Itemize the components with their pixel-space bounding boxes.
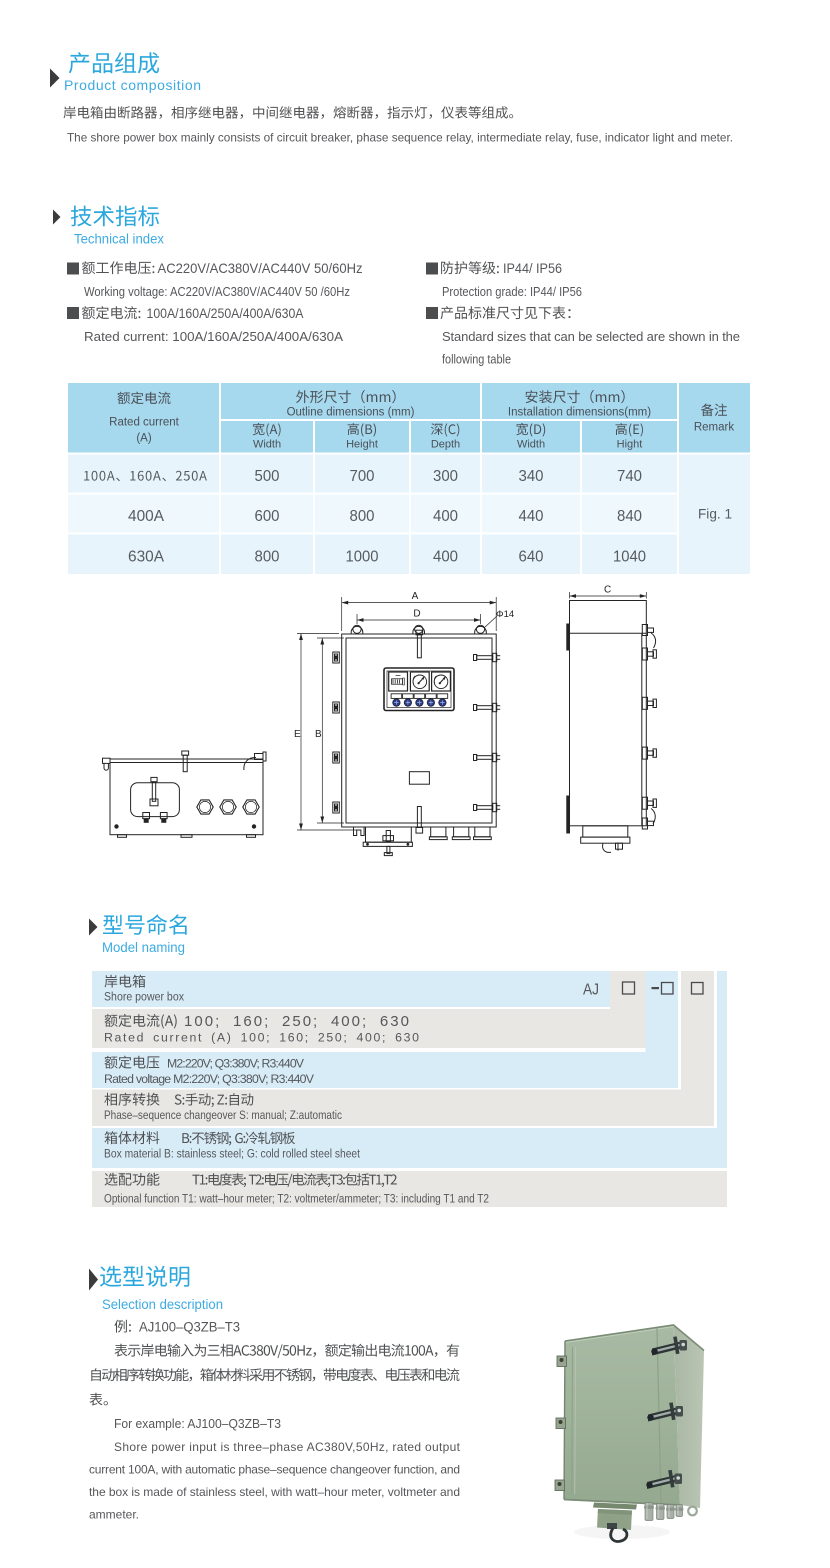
svg-text:AC220V/AC380V/AC440V 50/60Hz: AC220V/AC380V/AC440V 50/60Hz (158, 260, 363, 276)
svg-text:Technical index: Technical index (74, 231, 164, 247)
svg-text:400A: 400A (128, 508, 164, 525)
svg-text:ammeter.: ammeter. (89, 1508, 139, 1522)
svg-text:Rated voltage M2:220V; Q3:38: Rated voltage M2:220V; Q3:380V; R3:440V (104, 1072, 315, 1086)
svg-text:300: 300 (433, 468, 458, 485)
svg-text:M2:220V; Q3:380V; R3:440V: M2:220V; Q3:380V; R3:440V (167, 1057, 305, 1071)
svg-text:600: 600 (255, 508, 280, 525)
svg-text:Rated current: 100A/160A/250A/: Rated current: 100A/160A/250A/400A/630A (84, 329, 343, 344)
svg-text:Product composition: Product composition (64, 77, 201, 93)
svg-text:640: 640 (519, 549, 544, 566)
svg-text:Width: Width (253, 439, 281, 451)
svg-text:(A): (A) (136, 433, 152, 445)
svg-text:E: E (294, 729, 301, 740)
svg-text:1040: 1040 (613, 549, 646, 566)
svg-text:Height: Height (346, 439, 378, 451)
svg-text:Box material B: stainless st: Box material B: stainless steel; G: cold… (104, 1147, 360, 1161)
svg-text:Shore power box: Shore power box (104, 990, 185, 1004)
svg-text:The shore power box mainly con: The shore power box mainly consists of c… (67, 131, 733, 145)
svg-text:Depth: Depth (431, 439, 460, 451)
svg-text:Installation dimensions(mm): Installation dimensions(mm) (508, 407, 651, 419)
svg-text:Rated current: Rated current (109, 417, 179, 429)
svg-text:Outline dimensions (mm): Outline dimensions (mm) (287, 407, 415, 419)
svg-text:Hight: Hight (617, 439, 643, 451)
svg-text:C: C (604, 585, 611, 596)
svg-text:AJ: AJ (583, 982, 599, 999)
svg-text:Φ14: Φ14 (496, 609, 514, 620)
svg-text:Standard sizes that can be sel: Standard sizes that can be selected are … (442, 329, 740, 344)
svg-text:840: 840 (617, 508, 642, 525)
svg-text:400: 400 (433, 508, 458, 525)
svg-text:AJ100–Q3ZB–T3: AJ100–Q3ZB–T3 (139, 1320, 240, 1335)
svg-text:following table: following table (442, 352, 511, 367)
svg-text:800: 800 (350, 508, 375, 525)
svg-text:Selection description: Selection description (102, 1297, 223, 1312)
svg-text:D: D (413, 609, 420, 620)
svg-text:Optional function T1: watt–ho: Optional function T1: watt–hour meter; T… (104, 1192, 489, 1206)
svg-text:Remark: Remark (694, 422, 735, 434)
svg-text:current 100A, with automatic p: current 100A, with automatic phase–seque… (89, 1463, 460, 1477)
svg-text:1000: 1000 (346, 549, 379, 566)
svg-text:500: 500 (255, 468, 280, 485)
svg-text:440: 440 (519, 508, 544, 525)
svg-text:For example: AJ100–Q3ZB–T3: For example: AJ100–Q3ZB–T3 (114, 1416, 281, 1431)
svg-text:100; 160; 250; 400; 630: 100; 160; 250; 400; 630 (184, 1013, 409, 1030)
svg-text:630A: 630A (128, 549, 164, 566)
svg-text:100A/160A/250A/400A/630A: 100A/160A/250A/400A/630A (147, 305, 305, 321)
svg-text:IP44/ IP56: IP44/ IP56 (503, 260, 562, 276)
svg-text:Protection grade: IP44/ IP56: Protection grade: IP44/ IP56 (442, 284, 582, 299)
svg-text:Working voltage: AC220V/AC380V: Working voltage: AC220V/AC380V/AC440V 50… (84, 284, 350, 299)
svg-text:Phase–sequence changeover S:: Phase–sequence changeover S: manual; Z:a… (104, 1108, 342, 1122)
svg-text:340: 340 (519, 468, 544, 485)
svg-text:700: 700 (350, 468, 375, 485)
svg-text:B: B (315, 729, 322, 740)
svg-text:800: 800 (255, 549, 280, 566)
svg-text:Shore power input is three–pha: Shore power input is three–phase AC380V,… (114, 1440, 461, 1454)
svg-text:740: 740 (617, 468, 642, 485)
svg-text:Model naming: Model naming (102, 940, 185, 955)
svg-text:Fig. 1: Fig. 1 (698, 506, 732, 522)
svg-text:Width: Width (517, 439, 545, 451)
svg-text:the box is made of stainless s: the box is made of stainless steel, with… (89, 1485, 460, 1499)
svg-text:A: A (412, 591, 419, 602)
svg-text:400: 400 (433, 549, 458, 566)
